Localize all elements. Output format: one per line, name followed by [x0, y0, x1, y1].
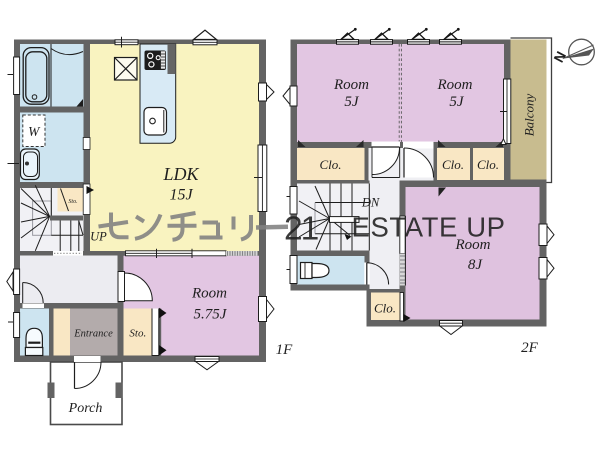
svg-text:8J: 8J — [468, 257, 484, 273]
svg-text:Sto.: Sto. — [129, 328, 146, 340]
svg-text:UP: UP — [90, 230, 107, 244]
svg-text:DN: DN — [361, 196, 380, 210]
svg-text:2F: 2F — [521, 340, 539, 356]
svg-text:Clo.: Clo. — [477, 157, 499, 172]
svg-text:Sto.: Sto. — [68, 199, 77, 205]
svg-text:5J: 5J — [344, 94, 360, 110]
svg-text:15J: 15J — [169, 187, 193, 204]
svg-text:LDK: LDK — [162, 164, 199, 184]
svg-text:Room: Room — [437, 77, 473, 93]
svg-text:Clo.: Clo. — [374, 301, 396, 316]
svg-text:Porch: Porch — [68, 401, 103, 416]
svg-text:Room: Room — [191, 286, 227, 302]
svg-text:Clo.: Clo. — [319, 157, 341, 172]
svg-text:ESTATE UP: ESTATE UP — [352, 212, 506, 243]
svg-text:Entrance: Entrance — [73, 329, 113, 340]
svg-text:Room: Room — [333, 77, 369, 93]
svg-text:1F: 1F — [276, 342, 294, 358]
svg-text:Balcony: Balcony — [522, 93, 537, 136]
svg-text:5J: 5J — [449, 94, 465, 110]
svg-text:5.75J: 5.75J — [194, 307, 228, 323]
svg-text:21: 21 — [284, 211, 318, 248]
svg-text:Clo.: Clo. — [442, 157, 464, 172]
svg-text:W: W — [28, 124, 41, 139]
